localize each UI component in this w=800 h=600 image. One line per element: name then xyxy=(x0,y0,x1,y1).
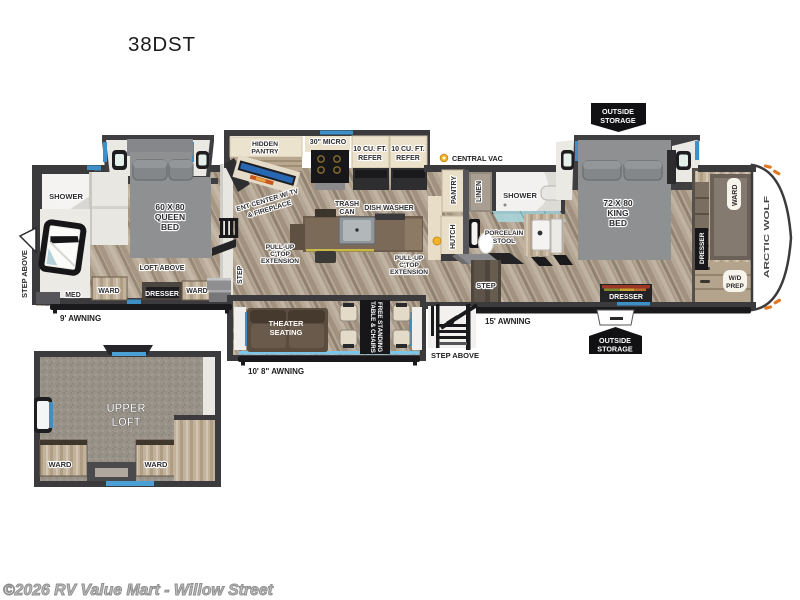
svg-text:WARD: WARD xyxy=(145,460,168,469)
svg-text:DRESSER: DRESSER xyxy=(699,232,706,264)
svg-text:W/D: W/D xyxy=(729,275,742,282)
svg-text:ARCTIC WOLF: ARCTIC WOLF xyxy=(762,195,771,278)
svg-text:9' AWNING: 9' AWNING xyxy=(60,314,101,323)
svg-text:OUTSIDE: OUTSIDE xyxy=(602,107,634,116)
svg-text:BED: BED xyxy=(161,222,179,232)
svg-text:QUEEN: QUEEN xyxy=(155,212,185,222)
svg-text:PREP: PREP xyxy=(726,283,744,290)
svg-text:72 X 80: 72 X 80 xyxy=(603,198,633,208)
svg-text:10 CU. FT.: 10 CU. FT. xyxy=(391,146,425,153)
svg-text:EXTENSION: EXTENSION xyxy=(261,258,299,265)
svg-text:STEP ABOVE: STEP ABOVE xyxy=(20,250,29,298)
svg-text:MED: MED xyxy=(65,292,81,299)
svg-text:PORCELAIN: PORCELAIN xyxy=(485,230,524,237)
svg-text:SHOWER: SHOWER xyxy=(49,192,83,201)
svg-text:KING: KING xyxy=(607,208,629,218)
svg-text:PULL-UP: PULL-UP xyxy=(266,244,295,251)
svg-text:REFER: REFER xyxy=(396,155,420,162)
svg-text:BED: BED xyxy=(609,218,627,228)
svg-text:EXTENSION: EXTENSION xyxy=(390,269,428,276)
svg-text:STEP: STEP xyxy=(237,265,244,284)
svg-text:SEATING: SEATING xyxy=(270,328,303,337)
svg-text:CAN: CAN xyxy=(339,209,354,216)
svg-text:WARD: WARD xyxy=(186,288,207,295)
svg-text:SHOWER: SHOWER xyxy=(503,191,537,200)
svg-text:30" MICRO: 30" MICRO xyxy=(310,139,347,146)
svg-text:©2026 RV Value Mart - Willow S: ©2026 RV Value Mart - Willow Street xyxy=(3,582,274,599)
svg-text:TABLE & CHAIRS: TABLE & CHAIRS xyxy=(369,301,376,353)
svg-text:10' 8" AWNING: 10' 8" AWNING xyxy=(248,367,304,376)
svg-text:DISH WASHER: DISH WASHER xyxy=(364,205,413,212)
svg-text:PANTRY: PANTRY xyxy=(251,149,279,156)
svg-text:WARD: WARD xyxy=(98,288,119,295)
svg-text:PULL-UP: PULL-UP xyxy=(395,255,424,262)
svg-text:STEP: STEP xyxy=(476,281,496,290)
svg-text:WARD: WARD xyxy=(49,460,72,469)
svg-text:DRESSER: DRESSER xyxy=(145,291,179,298)
svg-text:STOOL: STOOL xyxy=(493,238,515,245)
svg-text:15' AWNING: 15' AWNING xyxy=(485,317,531,326)
svg-text:STORAGE: STORAGE xyxy=(600,116,636,125)
svg-text:38DST: 38DST xyxy=(128,33,196,56)
svg-text:LINEN: LINEN xyxy=(476,181,483,202)
svg-text:WARD: WARD xyxy=(732,185,739,206)
svg-text:PANTRY: PANTRY xyxy=(451,176,458,204)
svg-text:HIDDEN: HIDDEN xyxy=(252,141,278,148)
svg-text:60 X 80: 60 X 80 xyxy=(155,202,185,212)
svg-text:HUTCH: HUTCH xyxy=(450,225,457,250)
svg-text:C'TOP: C'TOP xyxy=(399,262,419,269)
svg-text:UPPER: UPPER xyxy=(107,401,146,415)
svg-text:STEP ABOVE: STEP ABOVE xyxy=(431,351,479,360)
svg-text:LOFT ABOVE: LOFT ABOVE xyxy=(140,265,185,272)
svg-text:LOFT: LOFT xyxy=(112,415,142,429)
svg-text:THEATER: THEATER xyxy=(269,319,304,328)
svg-text:FREE STANDING: FREE STANDING xyxy=(376,302,383,352)
svg-text:REFER: REFER xyxy=(358,155,382,162)
svg-text:TRASH: TRASH xyxy=(335,201,359,208)
svg-text:CENTRAL VAC: CENTRAL VAC xyxy=(452,154,503,163)
svg-text:STORAGE: STORAGE xyxy=(597,345,633,354)
svg-text:C'TOP: C'TOP xyxy=(270,251,290,258)
svg-text:10 CU. FT.: 10 CU. FT. xyxy=(353,146,387,153)
svg-text:DRESSER: DRESSER xyxy=(609,294,643,301)
